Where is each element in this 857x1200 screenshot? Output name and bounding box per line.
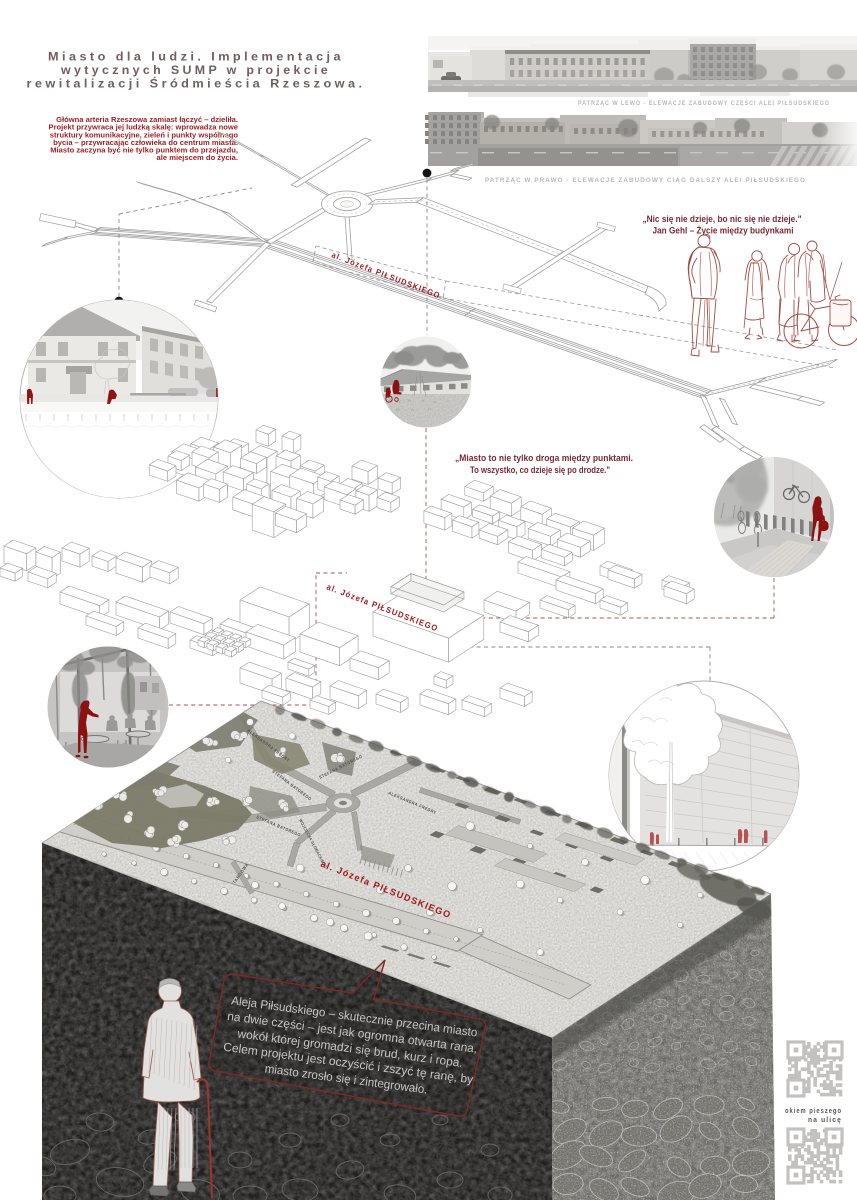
svg-text:„Nic się nie dzieje, bo nic si: „Nic się nie dzieje, bo nic się nie dzie… bbox=[643, 214, 802, 224]
svg-text:„Miasto to nie tylko droga mię: „Miasto to nie tylko droga między punkta… bbox=[455, 453, 633, 463]
svg-text:Jan Gehl – Życie między budynk: Jan Gehl – Życie między budynkami bbox=[653, 226, 794, 236]
svg-text:To wszystko, co dzieje się po: To wszystko, co dzieje się po drodze." bbox=[470, 465, 610, 475]
svg-text:na ulicę: na ulicę bbox=[808, 1117, 842, 1124]
svg-text:wytycznych SUMP w projekcie: wytycznych SUMP w projekcie bbox=[60, 65, 331, 77]
svg-text:rewitalizacji Śródmieścia Rzes: rewitalizacji Śródmieścia Rzeszowa. bbox=[27, 78, 366, 91]
svg-text:PATRZĄC W LEWO - ELEWACJE ZABU: PATRZĄC W LEWO - ELEWACJE ZABUDOWY CZĘŚC… bbox=[578, 98, 830, 107]
svg-text:okiem pieszego: okiem pieszego bbox=[785, 1108, 842, 1115]
svg-text:ale miejscem do życia.: ale miejscem do życia. bbox=[157, 153, 238, 162]
svg-text:Miasto dla ludzi. Implementacj: Miasto dla ludzi. Implementacja bbox=[48, 52, 344, 64]
svg-text:PATRZĄC W PRAWO - ELEWACJE ZAB: PATRZĄC W PRAWO - ELEWACJE ZABUDOWY CIĄG… bbox=[485, 177, 806, 184]
